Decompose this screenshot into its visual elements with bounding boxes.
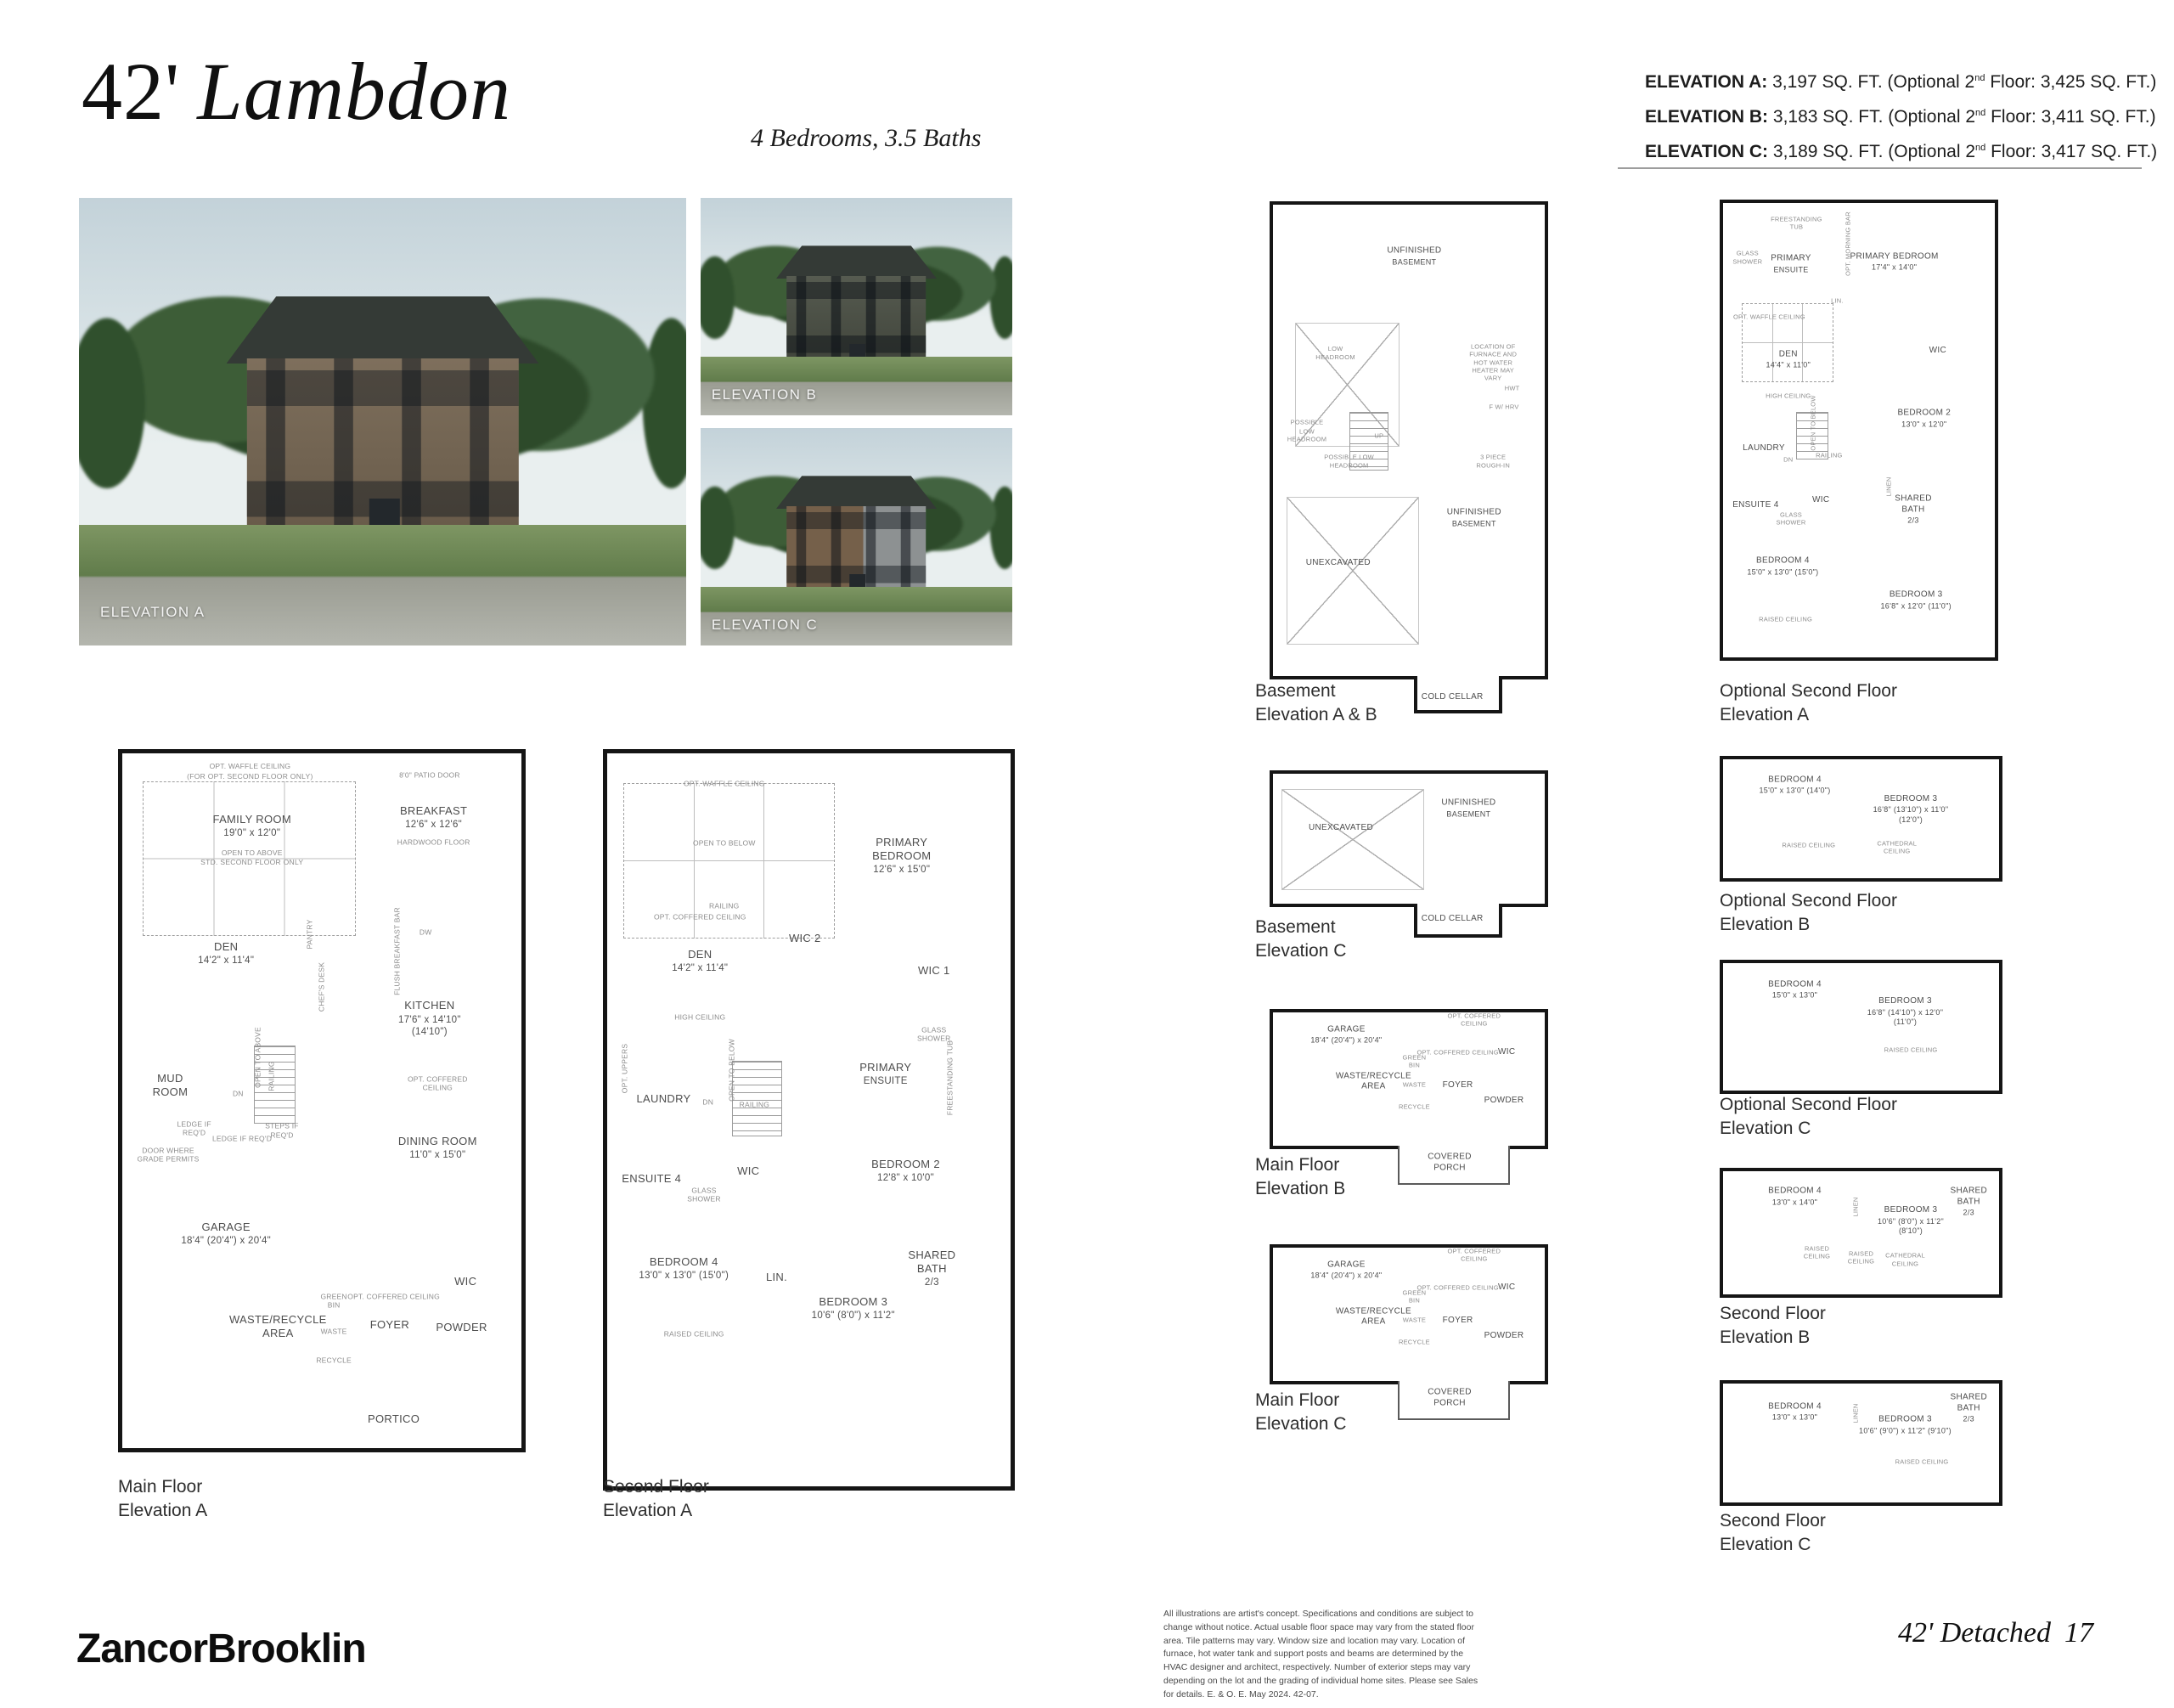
room-label: WIC	[737, 1164, 759, 1178]
page-subtitle: 4 Bedrooms, 3.5 Baths	[751, 124, 981, 153]
room-label: WIC 2	[789, 932, 821, 945]
room-label: POWDER	[436, 1321, 487, 1334]
plan-note: DW	[420, 928, 432, 938]
room-label: BEDROOM 316'8" (14'10") x 12'0" (11'0")	[1858, 996, 1952, 1027]
plan-caption-optional-second-floor-c: Optional Second FloorElevation C	[1720, 1093, 1897, 1141]
unexcavated-area	[1281, 789, 1424, 889]
plan-note: RAILING	[268, 1062, 277, 1091]
roof-illustration	[226, 296, 538, 364]
plan-note: GLASS SHOWER	[1771, 510, 1811, 527]
room-label: FOYER	[1443, 1080, 1473, 1091]
photo-label-elevation-b: ELEVATION B	[712, 386, 817, 403]
plan-caption-line: Elevation B	[1255, 1177, 1345, 1201]
plan-note: RAILING	[709, 901, 739, 910]
plan-caption-line: Elevation C	[1255, 1412, 1346, 1436]
house-render	[769, 245, 944, 371]
plan-caption-main-floor-c: Main FloorElevation C	[1255, 1389, 1346, 1437]
room-label: BEDROOM 415'0" x 13'0"	[1768, 979, 1822, 1001]
plan-caption-line: Basement	[1255, 679, 1377, 703]
room-label: COLD CELLAR	[1422, 914, 1484, 925]
plan-note: POSSIBLELOW HEADROOM	[1279, 419, 1335, 443]
plan-note: CATHEDRAL CEILING	[1878, 1252, 1933, 1268]
room-label: BEDROOM 310'6" (9'0") x 11'2" (9'10")	[1859, 1415, 1952, 1436]
plan-note: RAISED CEILING	[664, 1330, 724, 1339]
room-label: WIC	[1498, 1282, 1515, 1294]
plan-note: RAISED CEILING	[1759, 615, 1812, 623]
plan-note: FLUSH BREAKFAST BAR	[393, 907, 403, 995]
room-label: FOYER	[1443, 1316, 1473, 1327]
plan-note: GLASS SHOWER	[1727, 250, 1768, 266]
plan-note: HIGH CEILING	[674, 1012, 725, 1022]
room-label: MUD ROOM	[140, 1072, 200, 1100]
plan-caption-line: Second Floor	[1720, 1509, 1826, 1533]
room-label: ENSUITE 4	[622, 1171, 681, 1185]
room-label: BEDROOM 413'0" x 13'0"	[1768, 1401, 1822, 1423]
plan-caption-line: Elevation C	[1255, 939, 1346, 963]
plan-note: FREESTANDING TUB	[945, 1040, 955, 1115]
plan-caption-line: Elevation A	[603, 1499, 709, 1523]
room-label: BEDROOM 413'0" x 14'0"	[1768, 1187, 1822, 1208]
plan-second-floor-c: BEDROOM 413'0" x 13'0"LINENBEDROOM 310'6…	[1720, 1380, 2002, 1506]
plan-note: OPT. WAFFLE CEILING	[684, 780, 765, 789]
house-render	[769, 476, 944, 601]
plan-note: OPT. COFFERED CEILING	[396, 1074, 480, 1092]
builder-logo-zancor: Zancor	[76, 1626, 207, 1671]
plan-note: RAISED CEILING	[1843, 1249, 1880, 1265]
plan-note: F W/ HRV	[1489, 403, 1518, 410]
plan-note: HARDWOOD FLOOR	[397, 837, 470, 847]
plan-note: OPT. COFFERED CEILING	[1416, 1283, 1498, 1291]
room-label: COVERED PORCH	[1416, 1388, 1484, 1409]
room-label: PORTICO	[368, 1412, 420, 1426]
room-label: PRIMARYENSUITE	[859, 1061, 911, 1088]
plan-caption-main-floor-b: Main FloorElevation B	[1255, 1153, 1345, 1202]
room-label: UNFINISHEDBASEMENT	[1441, 798, 1495, 820]
plan-caption-optional-second-floor-b: Optional Second FloorElevation B	[1720, 889, 1897, 938]
plan-note: STEPS IF REQ'D	[256, 1122, 307, 1140]
plan-note: OPEN TO BELOW	[728, 1039, 737, 1102]
photo-label-elevation-c: ELEVATION C	[712, 617, 818, 634]
plan-note: LOCATION OF FURNACE AND HOT WATER HEATER…	[1467, 342, 1519, 382]
plan-note: GLASS SHOWER	[680, 1186, 728, 1203]
elevation-c-photo: ELEVATION C	[701, 428, 1012, 645]
plan-note: RAILING	[740, 1101, 769, 1110]
page-title-name: Lambdon	[197, 46, 511, 137]
page-title-number: 42'	[82, 46, 180, 137]
room-label: GARAGE18'4" (20'4") x 20'4"	[1310, 1260, 1382, 1281]
room-label: POWDER	[1484, 1330, 1524, 1341]
plan-note: UP	[1374, 431, 1383, 439]
header-divider	[1618, 167, 2142, 169]
plan-basement-ab: UNFINISHEDBASEMENTLOWHEADROOMLOCATION OF…	[1270, 201, 1548, 679]
room-label: BEDROOM 310'6" (8'0") x 11'2"	[812, 1295, 895, 1322]
room-label: UNEXCAVATED	[1309, 823, 1373, 834]
plan-note: HWT	[1505, 385, 1520, 392]
plan-caption-line: Optional Second Floor	[1720, 679, 1897, 703]
legal-disclaimer: All illustrations are artist's concept. …	[1163, 1608, 1488, 1701]
plan-note: OPT. WAFFLE CEILING(FOR OPT. SECOND FLOO…	[187, 762, 313, 781]
room-label: DINING ROOM11'0" x 15'0"	[398, 1135, 477, 1162]
room-label: SHARED BATH2/3	[1951, 1187, 1987, 1218]
plan-second-floor-b: BEDROOM 413'0" x 14'0"LINENBEDROOM 310'6…	[1720, 1168, 2002, 1298]
plan-caption-line: Elevation B	[1720, 913, 1897, 937]
room-label: WASTE/RECYCLE AREA	[222, 1313, 333, 1341]
plan-note: LIN.	[1831, 296, 1844, 304]
plan-basement-c: UNFINISHEDBASEMENTUNEXCAVATEDCOLD CELLAR	[1270, 770, 1548, 907]
plan-note: WASTE	[1403, 1080, 1426, 1088]
plan-optional-second-floor-c: BEDROOM 415'0" x 13'0"BEDROOM 316'8" (14…	[1720, 960, 2002, 1094]
plan-note: DN	[233, 1090, 244, 1099]
plan-optional-second-floor-b: BEDROOM 415'0" x 13'0" (14'0")BEDROOM 31…	[1720, 756, 2002, 882]
room-label: WIC	[1812, 495, 1829, 506]
room-label: LAUNDRY	[1743, 443, 1785, 454]
room-label: UNFINISHEDBASEMENT	[1447, 508, 1501, 529]
plan-caption-second-floor-c: Second FloorElevation C	[1720, 1509, 1826, 1558]
room-label: COVERED PORCH	[1416, 1153, 1484, 1174]
room-label: BEDROOM 212'8" x 10'0"	[871, 1158, 940, 1185]
plan-note: WASTE	[1403, 1316, 1426, 1323]
series-label: 42' Detached	[1898, 1617, 2051, 1649]
plan-note: RAISED CEILING	[1884, 1046, 1938, 1053]
plan-caption-line: Elevation A	[1720, 703, 1897, 727]
plan-caption-optional-second-floor-a: Optional Second FloorElevation A	[1720, 679, 1897, 728]
room-label: LIN.	[766, 1271, 787, 1284]
plan-note: OPEN TO BELOW	[693, 839, 756, 848]
elevation-spec-line: ELEVATION A: 3,197 SQ. FT. (Optional 2nd…	[1645, 63, 2157, 98]
plan-caption-line: Basement	[1255, 916, 1346, 939]
plan-note: LOWHEADROOM	[1315, 345, 1355, 362]
plan-note: OPT. COFFERED CEILING	[347, 1292, 440, 1301]
room-label: DEN14'2" x 11'4"	[672, 948, 728, 975]
plan-note: WASTE	[321, 1327, 347, 1336]
page: { "header": { "title_prefix": "42'", "ti…	[0, 0, 2174, 1708]
room-label: WIC	[1929, 346, 1946, 357]
room-label: DEN14'2" x 11'4"	[198, 940, 254, 967]
room-label: PRIMARY BEDROOM17'4" x 14'0"	[1850, 251, 1939, 273]
room-label: UNEXCAVATED	[1306, 558, 1371, 569]
plan-note: RAISED CEILING	[1895, 1458, 1949, 1466]
plan-note: FREESTANDING TUB	[1766, 216, 1826, 232]
room-label: WIC	[1498, 1047, 1515, 1058]
room-label: WIC 1	[918, 964, 950, 978]
plan-note: PANTRY	[306, 919, 315, 949]
unexcavated-area	[1287, 497, 1419, 645]
plan-caption-line: Elevation A & B	[1255, 703, 1377, 727]
house-render	[212, 296, 552, 556]
plan-note: RAILING	[1816, 451, 1842, 459]
plan-note: OPT. COFFERED CEILING	[1439, 1247, 1509, 1263]
plan-main-floor-b: GARAGE18'4" (20'4") x 20'4"OPT. COFFERED…	[1270, 1009, 1548, 1149]
plan-note: LINEN	[1851, 1198, 1859, 1217]
elevation-b-photo: ELEVATION B	[701, 198, 1012, 415]
elevation-a-photo: ELEVATION A	[79, 198, 686, 645]
plan-caption-line: Elevation C	[1720, 1533, 1826, 1557]
room-label: FAMILY ROOM19'0" x 12'0"	[213, 813, 291, 840]
plan-caption-line: Elevation C	[1720, 1117, 1897, 1141]
plan-note: 3 PIECE ROUGH-IN	[1467, 454, 1519, 470]
plan-caption-line: Elevation A	[118, 1499, 207, 1523]
room-label: GARAGE18'4" (20'4") x 20'4"	[1310, 1024, 1382, 1046]
plan-note: DN	[702, 1097, 713, 1107]
builder-logo-brooklin: Brooklin	[207, 1626, 366, 1671]
room-label: POWDER	[1484, 1095, 1524, 1106]
builder-logo: ZancorBrooklin	[76, 1626, 366, 1672]
room-label: PRIMARYENSUITE	[1771, 254, 1811, 275]
room-label: BEDROOM 413'0" x 13'0" (15'0")	[639, 1255, 729, 1282]
page-title: 42'Lambdon	[82, 44, 511, 138]
room-label: PRIMARY BEDROOM12'6" x 15'0"	[848, 836, 956, 877]
plan-second-floor-a: OPT. WAFFLE CEILINGOPEN TO BELOWPRIMARY …	[603, 749, 1015, 1491]
room-label: BEDROOM 213'0" x 12'0"	[1897, 409, 1951, 430]
plan-caption-line: Elevation B	[1720, 1326, 1826, 1350]
plan-caption-line: Optional Second Floor	[1720, 889, 1897, 913]
room-label: UNFINISHEDBASEMENT	[1387, 246, 1441, 268]
plan-caption-basement-ab: BasementElevation A & B	[1255, 679, 1377, 728]
plan-caption-line: Optional Second Floor	[1720, 1093, 1897, 1117]
elevation-spec-line: ELEVATION C: 3,189 SQ. FT. (Optional 2nd…	[1645, 132, 2157, 167]
room-label: COLD CELLAR	[1422, 692, 1484, 703]
page-number: 17	[2064, 1617, 2093, 1649]
plan-note: OPT. COFFERED CEILING	[1439, 1012, 1509, 1028]
plan-note: HIGH CEILING	[1766, 392, 1811, 400]
plan-note: OPT. UPPERS	[621, 1044, 630, 1093]
room-label: BEDROOM 310'6" (8'0") x 11'2" (8'10")	[1867, 1205, 1955, 1236]
room-label: LAUNDRY	[637, 1092, 691, 1106]
room-label: SHARED BATH2/3	[1951, 1393, 1987, 1424]
plan-note: DN	[1783, 456, 1793, 464]
room-label: GARAGE18'4" (20'4") x 20'4"	[181, 1220, 271, 1248]
roof-illustration	[776, 245, 937, 279]
plan-note: OPT. WAFFLE CEILING	[1733, 313, 1805, 320]
plan-note: OPEN TO ABOVE	[253, 1027, 262, 1088]
elevation-spec-line: ELEVATION B: 3,183 SQ. FT. (Optional 2nd…	[1645, 98, 2157, 132]
plan-note: POSSIBLE LOW HEADROOM	[1312, 454, 1387, 470]
plan-caption-line: Main Floor	[1255, 1153, 1345, 1177]
photo-label-elevation-a: ELEVATION A	[100, 604, 205, 621]
plan-note: OPT. COFFERED CEILING	[1416, 1048, 1498, 1056]
plan-note: 8'0" PATIO DOOR	[399, 771, 460, 781]
plan-caption-line: Main Floor	[118, 1475, 207, 1499]
plan-caption-second-floor-b: Second FloorElevation B	[1720, 1302, 1826, 1350]
plan-note: CATHEDRAL CEILING	[1870, 839, 1924, 855]
plan-caption-basement-c: BasementElevation C	[1255, 916, 1346, 964]
room-label: BEDROOM 316'8" (13'10") x 11'0" (12'0")	[1867, 794, 1955, 825]
room-label: BEDROOM 415'0" x 13'0" (15'0")	[1747, 556, 1818, 578]
plan-caption-second-floor-a: Second FloorElevation A	[603, 1475, 709, 1524]
plan-note: OPT. COFFERED CEILING	[654, 913, 746, 922]
plan-caption-main-floor-a: Main FloorElevation A	[118, 1475, 207, 1524]
room-label: SHARED BATH2/3	[1886, 494, 1940, 526]
room-label: KITCHEN17'6" x 14'10" (14'10")	[384, 999, 476, 1038]
stairs-illustration	[732, 1061, 782, 1136]
plan-note: RECYCLE	[316, 1356, 352, 1366]
plan-note: OPEN TO ABOVESTD. SECOND FLOOR ONLY	[200, 848, 303, 867]
plan-note: RECYCLE	[1399, 1339, 1430, 1346]
grass-illustration	[79, 525, 686, 645]
room-label: BEDROOM 316'8" x 12'0" (11'0")	[1880, 590, 1951, 612]
room-label: WIC	[454, 1275, 476, 1288]
room-label: SHARED BATH2/3	[901, 1249, 962, 1289]
room-label: ENSUITE 4	[1732, 500, 1778, 511]
elevation-specs: ELEVATION A: 3,197 SQ. FT. (Optional 2nd…	[1645, 63, 2157, 167]
plan-note: CHEF'S DESK	[318, 962, 327, 1012]
plan-note: RECYCLE	[1399, 1103, 1430, 1111]
plan-note: RAISED CEILING	[1792, 1244, 1843, 1260]
room-label: DEN14'4" x 11'0"	[1766, 349, 1811, 370]
plan-main-floor-a: OPT. WAFFLE CEILING(FOR OPT. SECOND FLOO…	[118, 749, 526, 1452]
roof-illustration	[776, 476, 937, 509]
plan-caption-line: Second Floor	[1720, 1302, 1826, 1326]
plan-note: DOOR WHERE GRADE PERMITS	[129, 1146, 207, 1164]
plan-note: OPEN TO BELOW	[1809, 396, 1816, 451]
plan-note: RAISED CEILING	[1782, 841, 1835, 848]
page-footer-label: 42' Detached17	[1898, 1617, 2093, 1649]
plan-main-floor-c: GARAGE18'4" (20'4") x 20'4"OPT. COFFERED…	[1270, 1244, 1548, 1384]
plan-caption-line: Second Floor	[603, 1475, 709, 1499]
plan-optional-second-floor-a: FREESTANDING TUBGLASS SHOWERPRIMARYENSUI…	[1720, 200, 1998, 661]
room-label: FOYER	[370, 1318, 409, 1332]
room-label: BREAKFAST12'6" x 12'6"	[400, 804, 467, 831]
room-label: BEDROOM 415'0" x 13'0" (14'0")	[1759, 775, 1830, 796]
plan-caption-line: Main Floor	[1255, 1389, 1346, 1412]
